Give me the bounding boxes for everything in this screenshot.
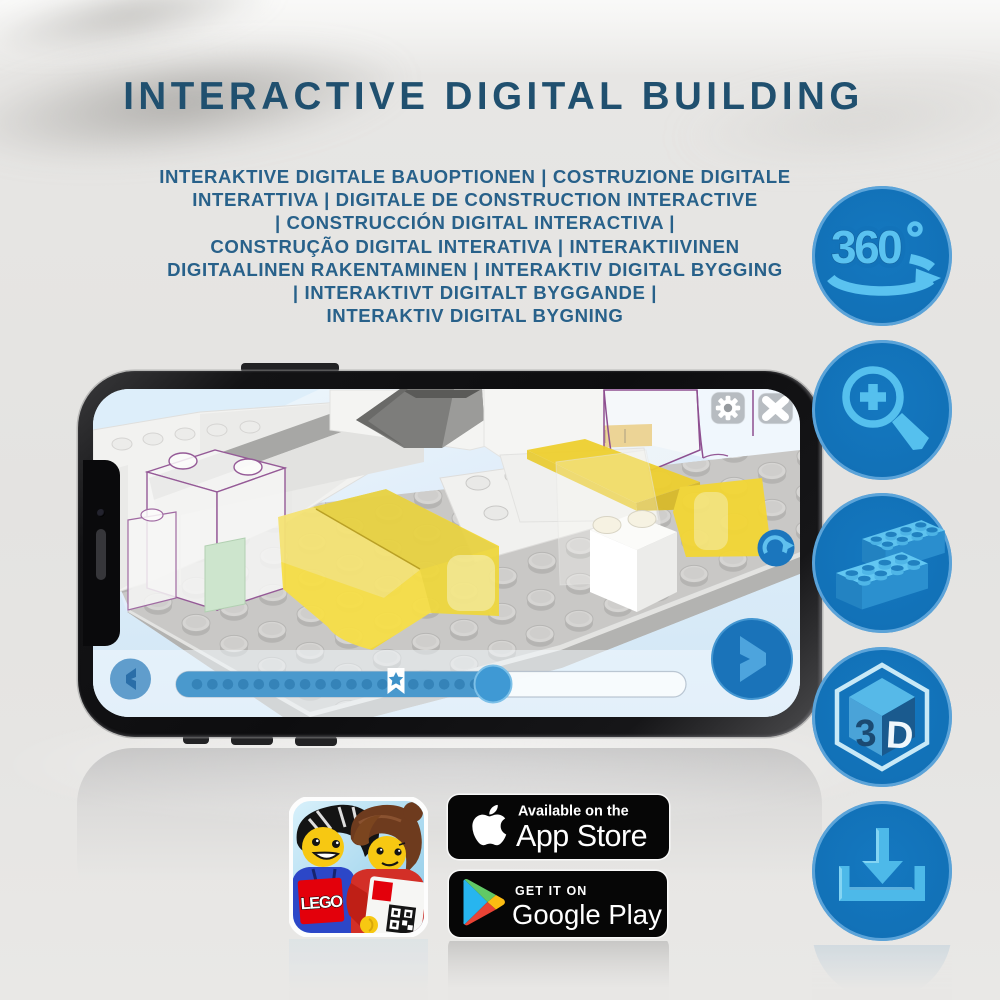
svg-text:LEGO: LEGO <box>300 892 344 913</box>
svg-text:D: D <box>885 714 915 757</box>
svg-text:3: 3 <box>854 712 878 755</box>
svg-text:App Store: App Store <box>516 819 647 853</box>
svg-text:Google Play: Google Play <box>512 899 662 930</box>
svg-text:360: 360 <box>831 221 901 273</box>
svg-text:GET IT ON: GET IT ON <box>515 884 587 898</box>
svg-text:Available on the: Available on the <box>518 804 629 820</box>
